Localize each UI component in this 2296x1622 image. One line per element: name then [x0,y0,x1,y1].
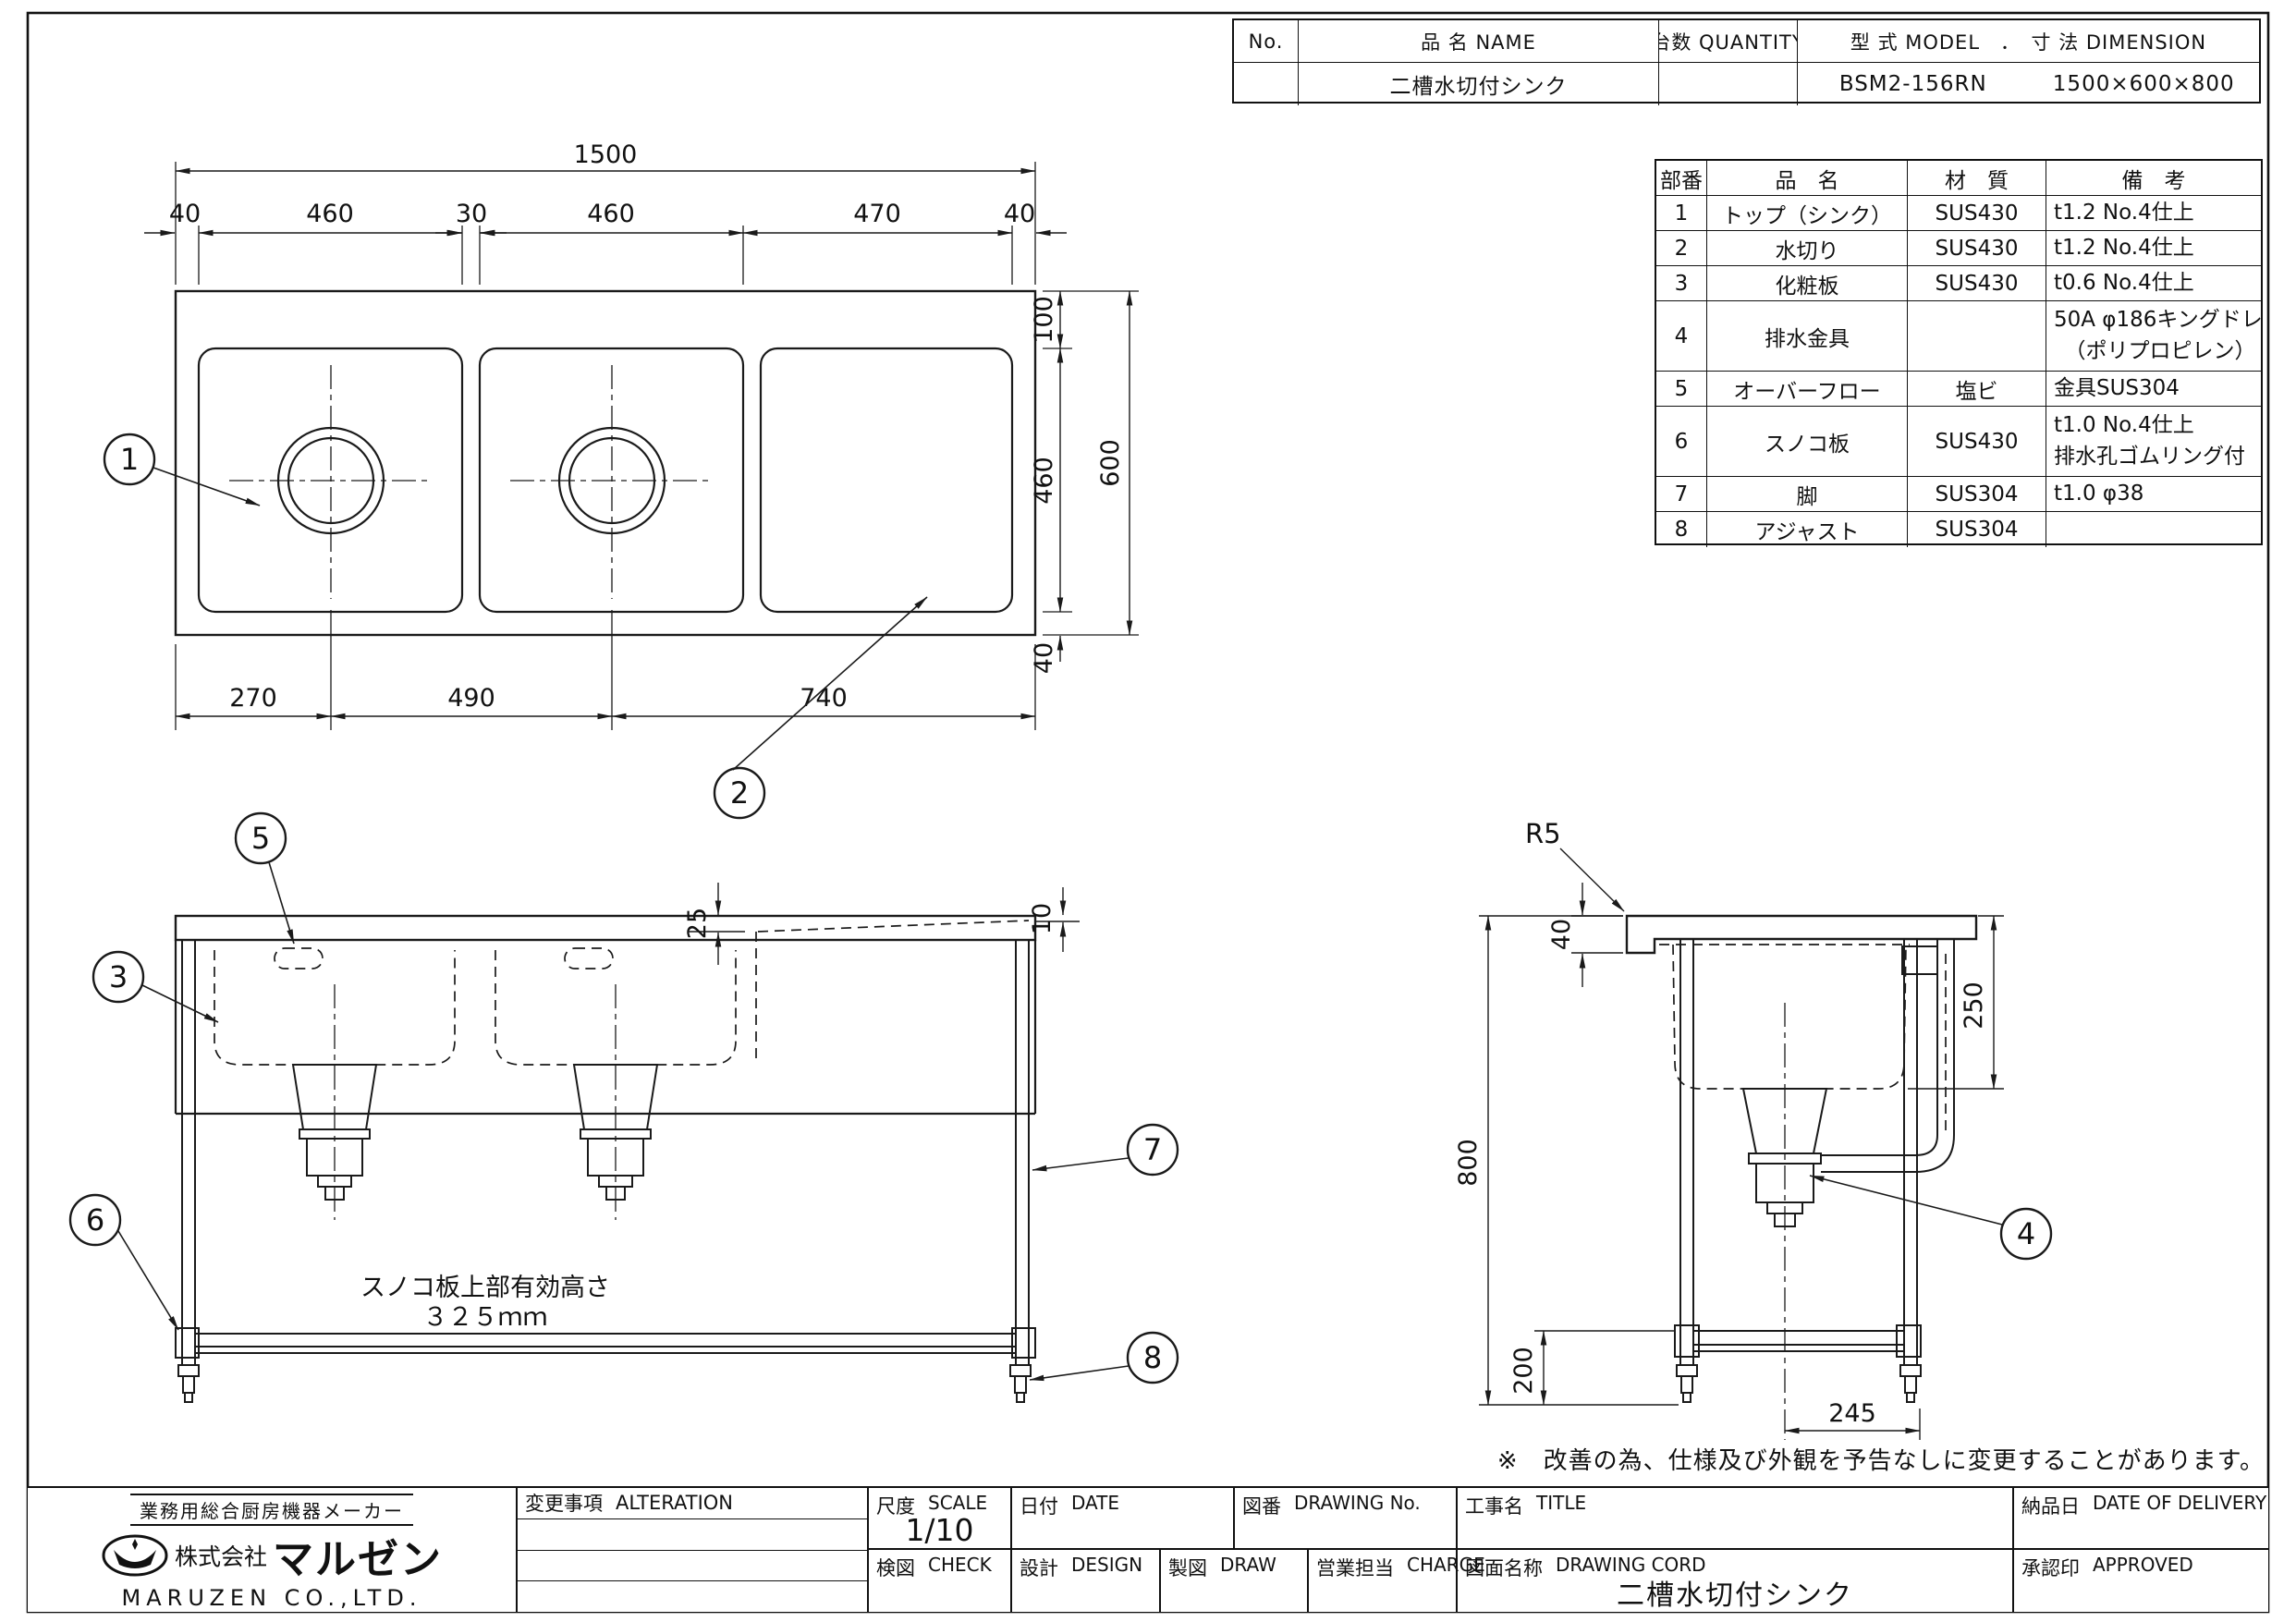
date-cell: 日付DATE [1012,1488,1235,1548]
dim-plan-100: 100 [1030,296,1058,344]
part-row-remarks [2046,512,2261,547]
maker-logo-row: 株式会社 マルゼン [101,1526,443,1585]
part-row-name: 排水金具 [1707,301,1908,372]
dim-side-r5: R5 [1525,818,1561,849]
part-row-name: 脚 [1707,477,1908,512]
dim-plan-460-side: 460 [1030,457,1058,505]
balloon-6: 6 [70,1195,178,1330]
dim-front-10: 10 [1028,903,1056,934]
delivery-date-cell: 納品日DATE OF DELIVERY [2014,1488,2268,1548]
dim-plan-30: 30 [456,200,487,228]
dim-side-800: 800 [1454,1139,1483,1187]
part-row-no: 8 [1656,512,1707,547]
company-prefix: 株式会社 [175,1539,267,1572]
header-no-value [1234,63,1299,105]
delivery-label: 納品日 [2021,1492,2080,1519]
date-label-en: DATE [1071,1492,1119,1519]
balloon-4: 4 [1810,1176,2051,1259]
note-slat-height-line2: ３２５ｍｍ [423,1303,548,1332]
dim-plan-40-right: 40 [1004,200,1035,228]
part-row-material: SUS430 [1908,231,2046,266]
header-qty-label: 台数 QUANTITY [1659,20,1798,63]
dim-side-40: 40 [1547,919,1576,950]
part-row-name: トップ（シンク） [1707,196,1908,231]
parts-col-remarks: 備 考 [2046,161,2261,196]
part-row-no: 1 [1656,196,1707,231]
svg-text:8: 8 [1143,1340,1162,1375]
header-name-label: 品 名 NAME [1299,20,1659,63]
header-model-value: BSM2-156RN [1798,72,2029,96]
header-modeldim-value: BSM2-156RN 1500×600×800 [1798,63,2259,105]
part-row-remarks: t1.0 φ38 [2046,477,2261,512]
check-label: 検図 [876,1554,915,1581]
alteration-label: 変更事項 [525,1489,603,1517]
dim-side-200: 200 [1509,1347,1538,1395]
header-dimension-value: 1500×600×800 [2029,72,2260,96]
title-block: 業務用総合厨房機器メーカー 株式会社 マルゼン MARUZEN CO.,LTD.… [28,1486,2268,1612]
dim-plan-40-bottom: 40 [1030,642,1058,674]
charge-label: 営業担当 [1316,1554,1394,1581]
dim-plan-460-left: 460 [306,200,354,228]
drawing-no-cell: 図番DRAWING No. [1235,1488,1458,1548]
draw-label-en: DRAW [1220,1554,1276,1581]
alteration-label-en: ALTERATION [616,1492,733,1514]
part-row-no: 2 [1656,231,1707,266]
parts-col-no: 部番 [1656,161,1707,196]
company-name: マルゼン [273,1526,443,1585]
draw-cell: 製図DRAW [1161,1550,1309,1612]
maruzen-logo-icon [101,1533,169,1578]
approved-label-en: APPROVED [2093,1554,2193,1581]
part-row-material: SUS430 [1908,266,2046,301]
drawing-sheet: 1500 40 460 30 460 470 40 270 490 740 10… [0,0,2296,1622]
part-row-material: SUS304 [1908,512,2046,547]
part-row-material: SUS430 [1908,196,2046,231]
part-row-no: 7 [1656,477,1707,512]
dim-plan-1500: 1500 [574,140,638,169]
dim-plan-40-left: 40 [169,200,201,228]
header-no-label: No. [1234,20,1299,63]
project-label-en: TITLE [1536,1492,1586,1519]
part-row-remarks: 金具SUS304 [2046,372,2261,407]
alteration-empty-row [518,1581,867,1612]
dim-plan-490: 490 [447,684,495,713]
drawing-no-label-en: DRAWING No. [1294,1492,1421,1519]
dim-side-245: 245 [1828,1399,1876,1428]
svg-text:3: 3 [109,959,128,994]
part-row-remarks: t0.6 No.4仕上 [2046,266,2261,301]
header-modeldim-label: 型 式 MODEL ． 寸 法 DIMENSION [1798,20,2259,63]
project-title-cell: 工事名TITLE [1458,1488,2014,1548]
check-label-en: CHECK [928,1554,992,1581]
approved-cell: 承認印APPROVED [2014,1550,2268,1612]
dim-plan-600: 600 [1096,439,1125,487]
title-block-main: 尺度SCALE 1/10 日付DATE 図番DRAWING No. 工事名TIT… [869,1488,2268,1612]
alteration-empty-row [518,1519,867,1551]
part-row-remarks: t1.2 No.4仕上 [2046,231,2261,266]
design-label-en: DESIGN [1071,1554,1142,1581]
part-row-name: スノコ板 [1707,407,1908,477]
dim-plan-460-right: 460 [587,200,635,228]
company-name-en: MARUZEN CO.,LTD. [122,1585,422,1611]
part-row-name: オーバーフロー [1707,372,1908,407]
check-cell: 検図CHECK [869,1550,1012,1612]
scale-cell: 尺度SCALE 1/10 [869,1488,1012,1548]
alteration-empty-row [518,1551,867,1582]
parts-col-material: 材 質 [1908,161,2046,196]
part-row-material [1908,301,2046,372]
part-row-no: 6 [1656,407,1707,477]
dim-plan-470: 470 [853,200,901,228]
approved-label: 承認印 [2021,1554,2080,1581]
part-row-no: 4 [1656,301,1707,372]
front-view-linework [176,883,1080,1402]
svg-text:7: 7 [1143,1132,1162,1167]
draw-label: 製図 [1168,1554,1207,1581]
design-cell: 設計DESIGN [1012,1550,1161,1612]
maker-tagline: 業務用総合厨房機器メーカー [130,1494,413,1526]
maker-logo-cell: 業務用総合厨房機器メーカー 株式会社 マルゼン MARUZEN CO.,LTD. [28,1488,518,1612]
design-label: 設計 [1020,1554,1058,1581]
balloon-8: 8 [1030,1333,1178,1383]
part-row-material: SUS304 [1908,477,2046,512]
drawing-no-label: 図番 [1242,1492,1281,1519]
balloon-3: 3 [93,952,218,1022]
balloon-7: 7 [1032,1125,1178,1175]
part-row-name: アジャスト [1707,512,1908,547]
header-qty-value [1659,63,1798,105]
note-slat-height-line1: スノコ板上部有効高さ [360,1274,610,1302]
drawing-name-cell: 図面名称DRAWING CORD 二槽水切付シンク [1458,1550,2014,1612]
header-table: No. 品 名 NAME 台数 QUANTITY 型 式 MODEL ． 寸 法… [1232,18,2261,104]
alteration-section: 変更事項 ALTERATION [518,1488,869,1612]
drawing-name-value: 二槽水切付シンク [1458,1572,2012,1613]
date-label: 日付 [1020,1492,1058,1519]
delivery-label-en: DATE OF DELIVERY [2093,1492,2266,1519]
svg-text:2: 2 [730,775,749,811]
parts-col-name: 品 名 [1707,161,1908,196]
dim-side-250: 250 [1960,982,1988,1030]
balloon-1: 1 [104,434,260,506]
header-name-value: 二槽水切付シンク [1299,63,1659,105]
dim-plan-740: 740 [800,684,848,713]
dim-front-25: 25 [683,908,712,939]
disclaimer-note: ※ 改善の為、仕様及び外観を予告なしに変更することがあります。 [1386,1442,2265,1476]
charge-cell: 営業担当CHARGE [1309,1550,1458,1612]
part-row-name: 化粧板 [1707,266,1908,301]
part-row-no: 3 [1656,266,1707,301]
plan-view-linework [144,162,1139,730]
alteration-header: 変更事項 ALTERATION [518,1488,867,1519]
part-row-material: SUS430 [1908,407,2046,477]
part-row-material: 塩ビ [1908,372,2046,407]
svg-text:6: 6 [86,1202,104,1238]
part-row-remarks: t1.0 No.4仕上 排水孔ゴムリング付 [2046,407,2261,477]
part-row-name: 水切り [1707,231,1908,266]
part-row-remarks: t1.2 No.4仕上 [2046,196,2261,231]
scale-value: 1/10 [869,1512,1010,1548]
balloon-5: 5 [236,813,294,944]
svg-text:1: 1 [120,442,139,477]
parts-table: 部番 品 名 材 質 備 考 1 トップ（シンク） SUS430 t1.2 No… [1655,159,2263,545]
project-label: 工事名 [1465,1492,1523,1519]
title-block-row-bottom: 検図CHECK 設計DESIGN 製図DRAW 営業担当CHARGE 図面名称D… [869,1550,2268,1612]
svg-text:4: 4 [2017,1216,2035,1251]
svg-text:5: 5 [251,821,270,856]
part-row-no: 5 [1656,372,1707,407]
part-row-remarks: 50A φ186キングドレン （ポリプロピレン） [2046,301,2261,372]
title-block-row-top: 尺度SCALE 1/10 日付DATE 図番DRAWING No. 工事名TIT… [869,1488,2268,1550]
dim-plan-270: 270 [229,684,277,713]
